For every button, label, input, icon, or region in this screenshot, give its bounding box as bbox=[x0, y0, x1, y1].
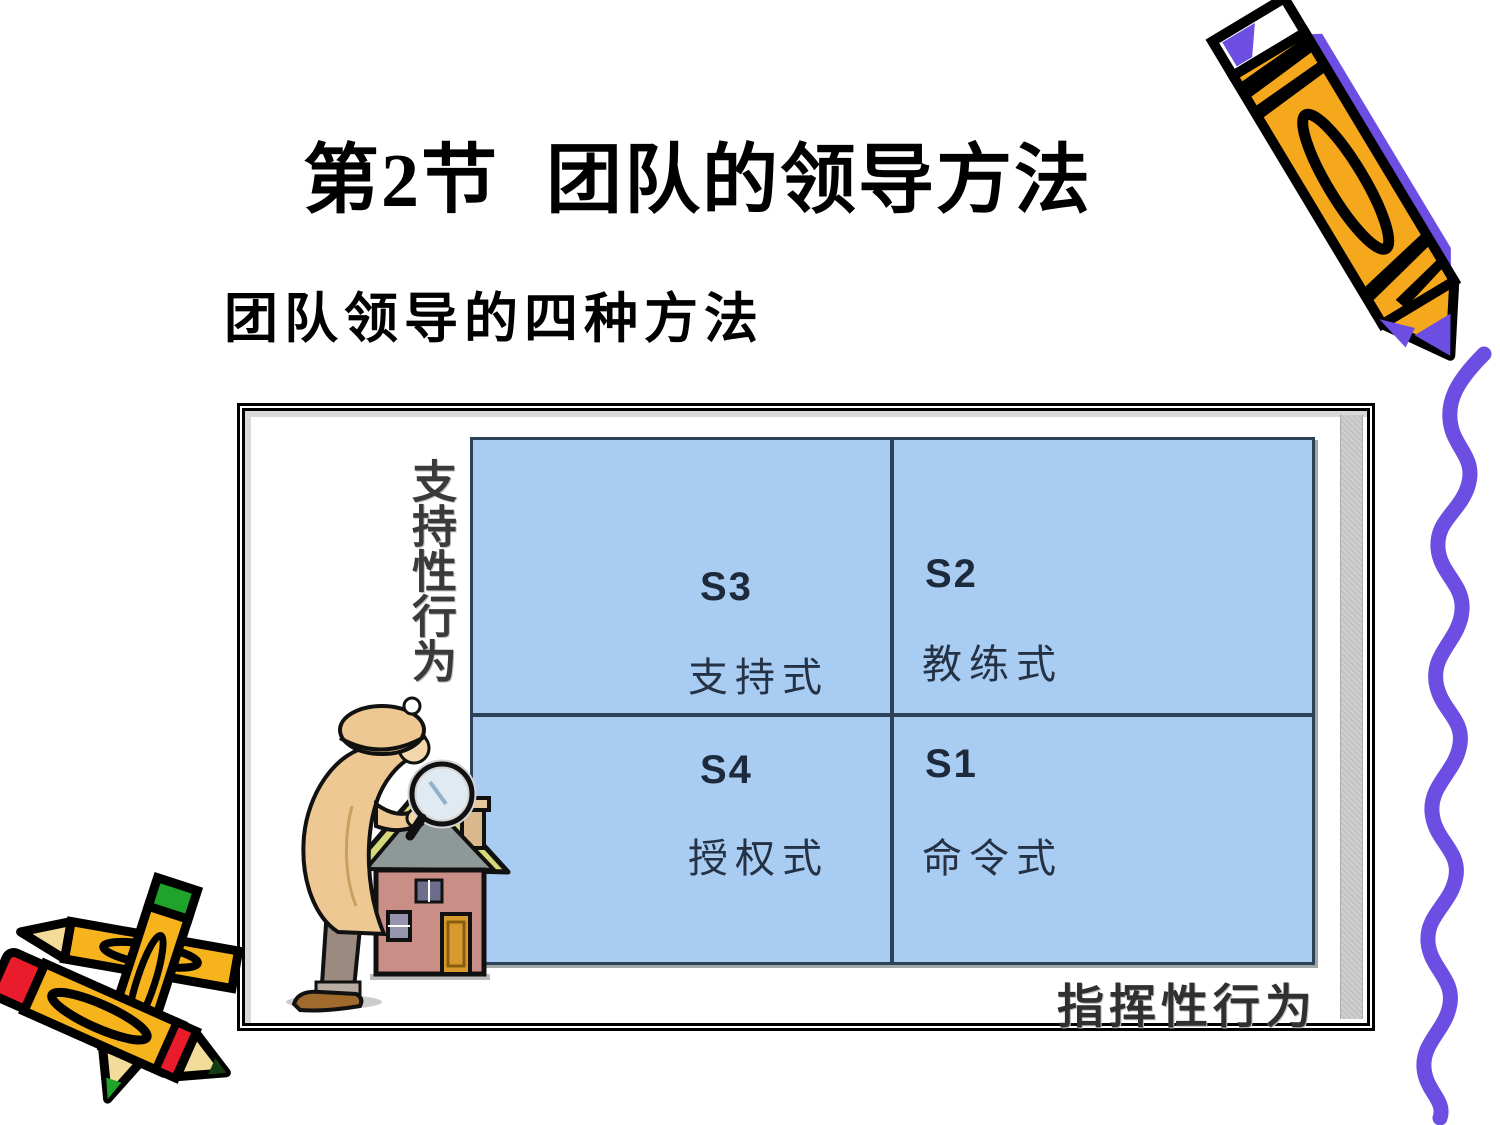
quadrant-code: S4 bbox=[700, 748, 753, 793]
slide: 第2节 团队的领导方法 团队领导的四种方法 支持性行为 指挥性行为 S3 支持式… bbox=[0, 0, 1500, 1125]
squiggle-line bbox=[1400, 350, 1500, 1125]
quadrant-label: 授权式 bbox=[688, 826, 829, 884]
y-axis-label: 支持性行为 bbox=[408, 458, 453, 683]
quadrant-label: 命令式 bbox=[922, 826, 1063, 884]
scrollbar bbox=[1340, 415, 1363, 1019]
quadrant-s2: S2 教练式 bbox=[894, 440, 1312, 713]
slide-subtitle: 团队领导的四种方法 bbox=[224, 274, 764, 353]
quadrant-label: 支持式 bbox=[688, 645, 829, 703]
quadrant-code: S3 bbox=[700, 565, 753, 610]
detective-house-icon bbox=[264, 686, 510, 1012]
quadrant-code: S1 bbox=[925, 742, 978, 787]
x-axis-label: 指挥性行为 bbox=[1057, 968, 1317, 1037]
quadrant-s4: S4 授权式 bbox=[473, 717, 890, 962]
quadrant-matrix: S3 支持式 S2 教练式 S4 授权式 S1 命令式 bbox=[470, 437, 1315, 965]
quadrant-code: S2 bbox=[925, 552, 978, 597]
frame-top-edge bbox=[245, 411, 1367, 417]
quadrant-s3: S3 支持式 bbox=[473, 440, 890, 713]
pencil-icon bbox=[1196, 0, 1500, 387]
crossed-pencils-icon bbox=[0, 872, 250, 1125]
quadrant-label: 教练式 bbox=[922, 632, 1063, 690]
quadrant-s1: S1 命令式 bbox=[894, 717, 1312, 962]
slide-title: 第2节 团队的领导方法 bbox=[303, 118, 1092, 228]
